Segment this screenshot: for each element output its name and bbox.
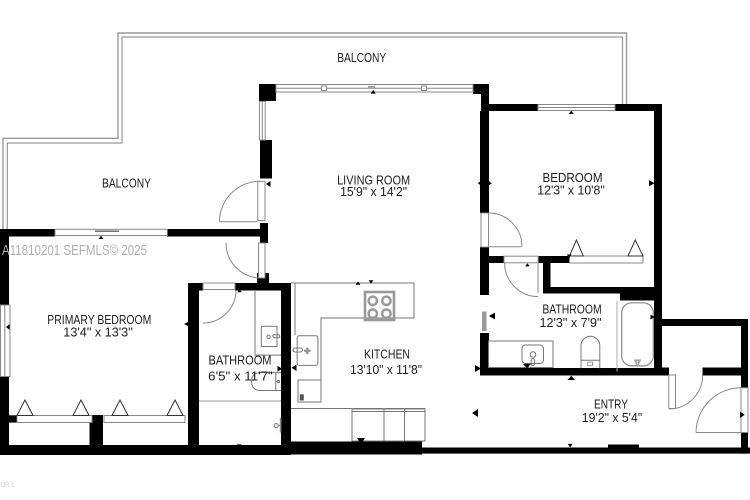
svg-text:13'10" x 11'8": 13'10" x 11'8" [350,362,422,377]
svg-text:A11810201 SEFMLS© 2025: A11810201 SEFMLS© 2025 [2,242,147,259]
svg-text:BATHROOM: BATHROOM [209,353,272,368]
svg-text:19'2" x 5'4": 19'2" x 5'4" [582,410,643,425]
svg-text:6'5" x 11'7": 6'5" x 11'7" [208,369,273,384]
svg-text:OR 1: OR 1 [1,483,16,489]
svg-text:BALCONY: BALCONY [102,176,151,191]
svg-text:BALCONY: BALCONY [337,50,386,65]
svg-text:12'3" x 10'8": 12'3" x 10'8" [537,183,605,198]
svg-text:12'3" x 7'9": 12'3" x 7'9" [540,315,602,330]
svg-text:13'4" x 13'3": 13'4" x 13'3" [63,325,133,340]
svg-text:KITCHEN: KITCHEN [364,347,410,362]
svg-text:15'9" x 14'2": 15'9" x 14'2" [340,184,407,199]
